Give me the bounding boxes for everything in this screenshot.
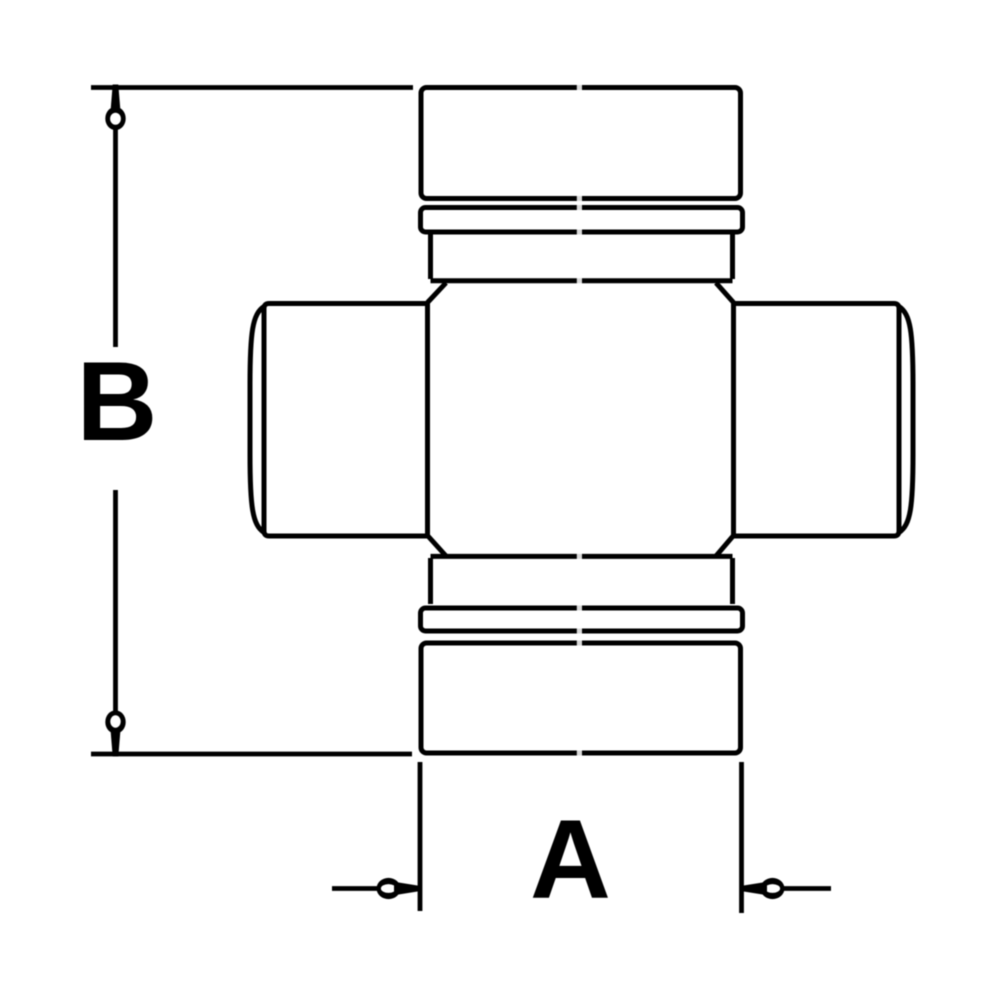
svg-text:A: A [530,797,611,922]
svg-text:B: B [77,339,158,464]
